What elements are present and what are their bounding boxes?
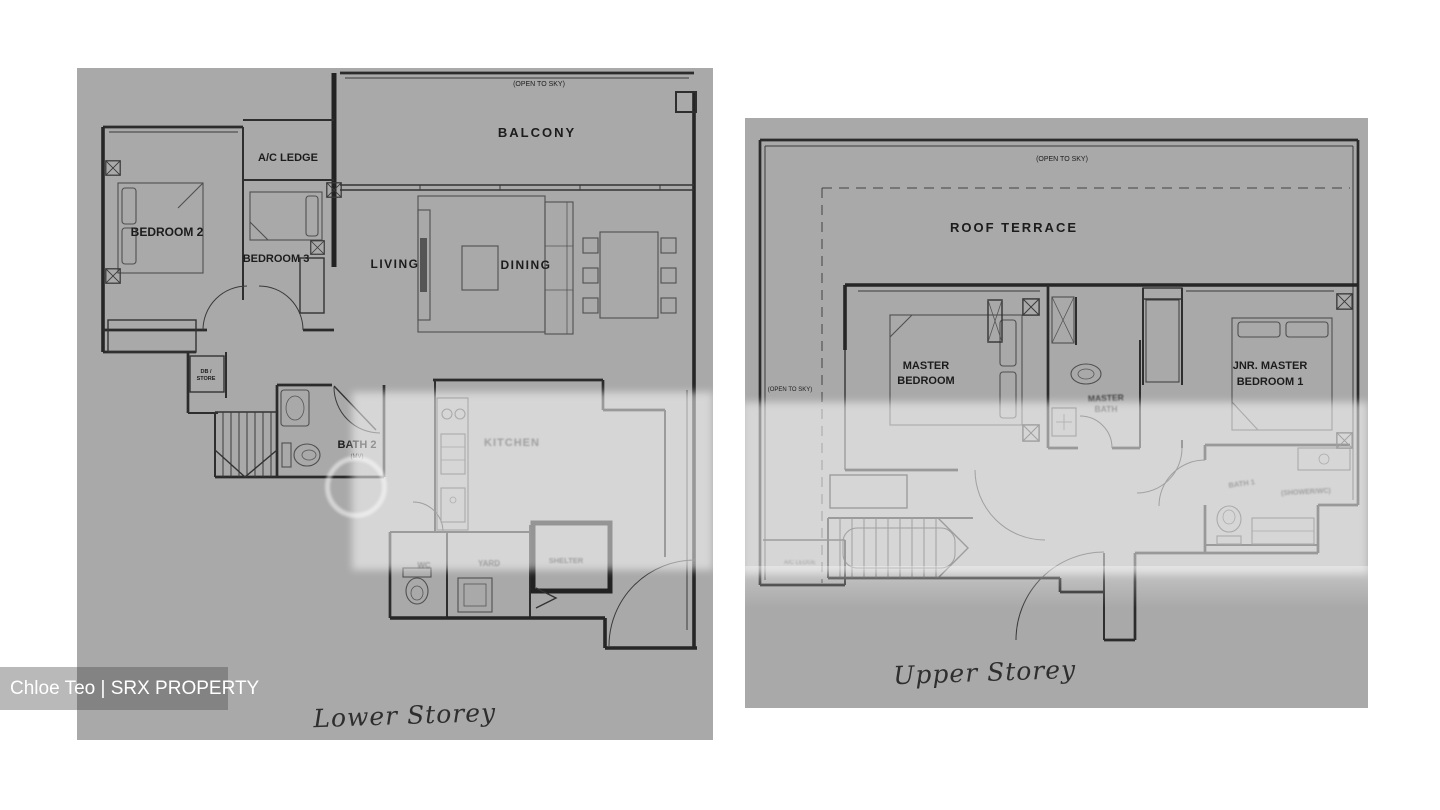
living-label: LIVING <box>370 257 419 271</box>
jnr-master-bedroom-label: JNR. MASTER <box>1233 360 1308 372</box>
roof-terrace-label: ROOF TERRACE <box>950 220 1078 235</box>
agent-credit-text: Chloe Teo | SRX PROPERTY <box>10 678 259 699</box>
open-to-sky-left-label: (OPEN TO SKY) <box>768 387 812 393</box>
db-store-label: DB / <box>201 369 212 375</box>
open-to-sky-label: (OPEN TO SKY) <box>513 81 565 88</box>
master-bath-label: BATH <box>1095 404 1118 414</box>
balcony-label: BALCONY <box>498 125 576 140</box>
yard-label: YARD <box>478 559 500 568</box>
bedroom2-label: BEDROOM 2 <box>131 225 204 239</box>
bath2-note-label: (MV) <box>351 454 364 460</box>
dining-label: DINING <box>501 258 552 272</box>
master-bedroom-label: MASTER <box>903 360 950 372</box>
bedroom3-label: BEDROOM 3 <box>243 253 310 265</box>
kitchen-label: KITCHEN <box>484 437 540 449</box>
floorplan-image: (OPEN TO SKY) BALCONY A/C LEDGE BEDROOM … <box>0 0 1440 810</box>
shelter-label: SHELTER <box>549 556 584 565</box>
wc-label: WC <box>417 561 431 570</box>
bath2-label: BATH 2 <box>338 439 377 451</box>
lower-storey-panel <box>77 68 713 740</box>
upper-ac-ledge-label: A/C LEDGE <box>784 560 816 566</box>
upper-storey-panel <box>745 118 1368 708</box>
agent-credit-bar: Chloe Teo | SRX PROPERTY <box>0 667 228 710</box>
jnr-master-bedroom-label: BEDROOM 1 <box>1237 376 1304 388</box>
open-to-sky-top-label: (OPEN TO SKY) <box>1036 156 1088 163</box>
db-store-label: STORE <box>197 376 216 382</box>
master-bedroom-label: BEDROOM <box>897 375 954 387</box>
ac-ledge-label: A/C LEDGE <box>258 152 318 164</box>
master-bath-label: MASTER <box>1088 392 1124 403</box>
